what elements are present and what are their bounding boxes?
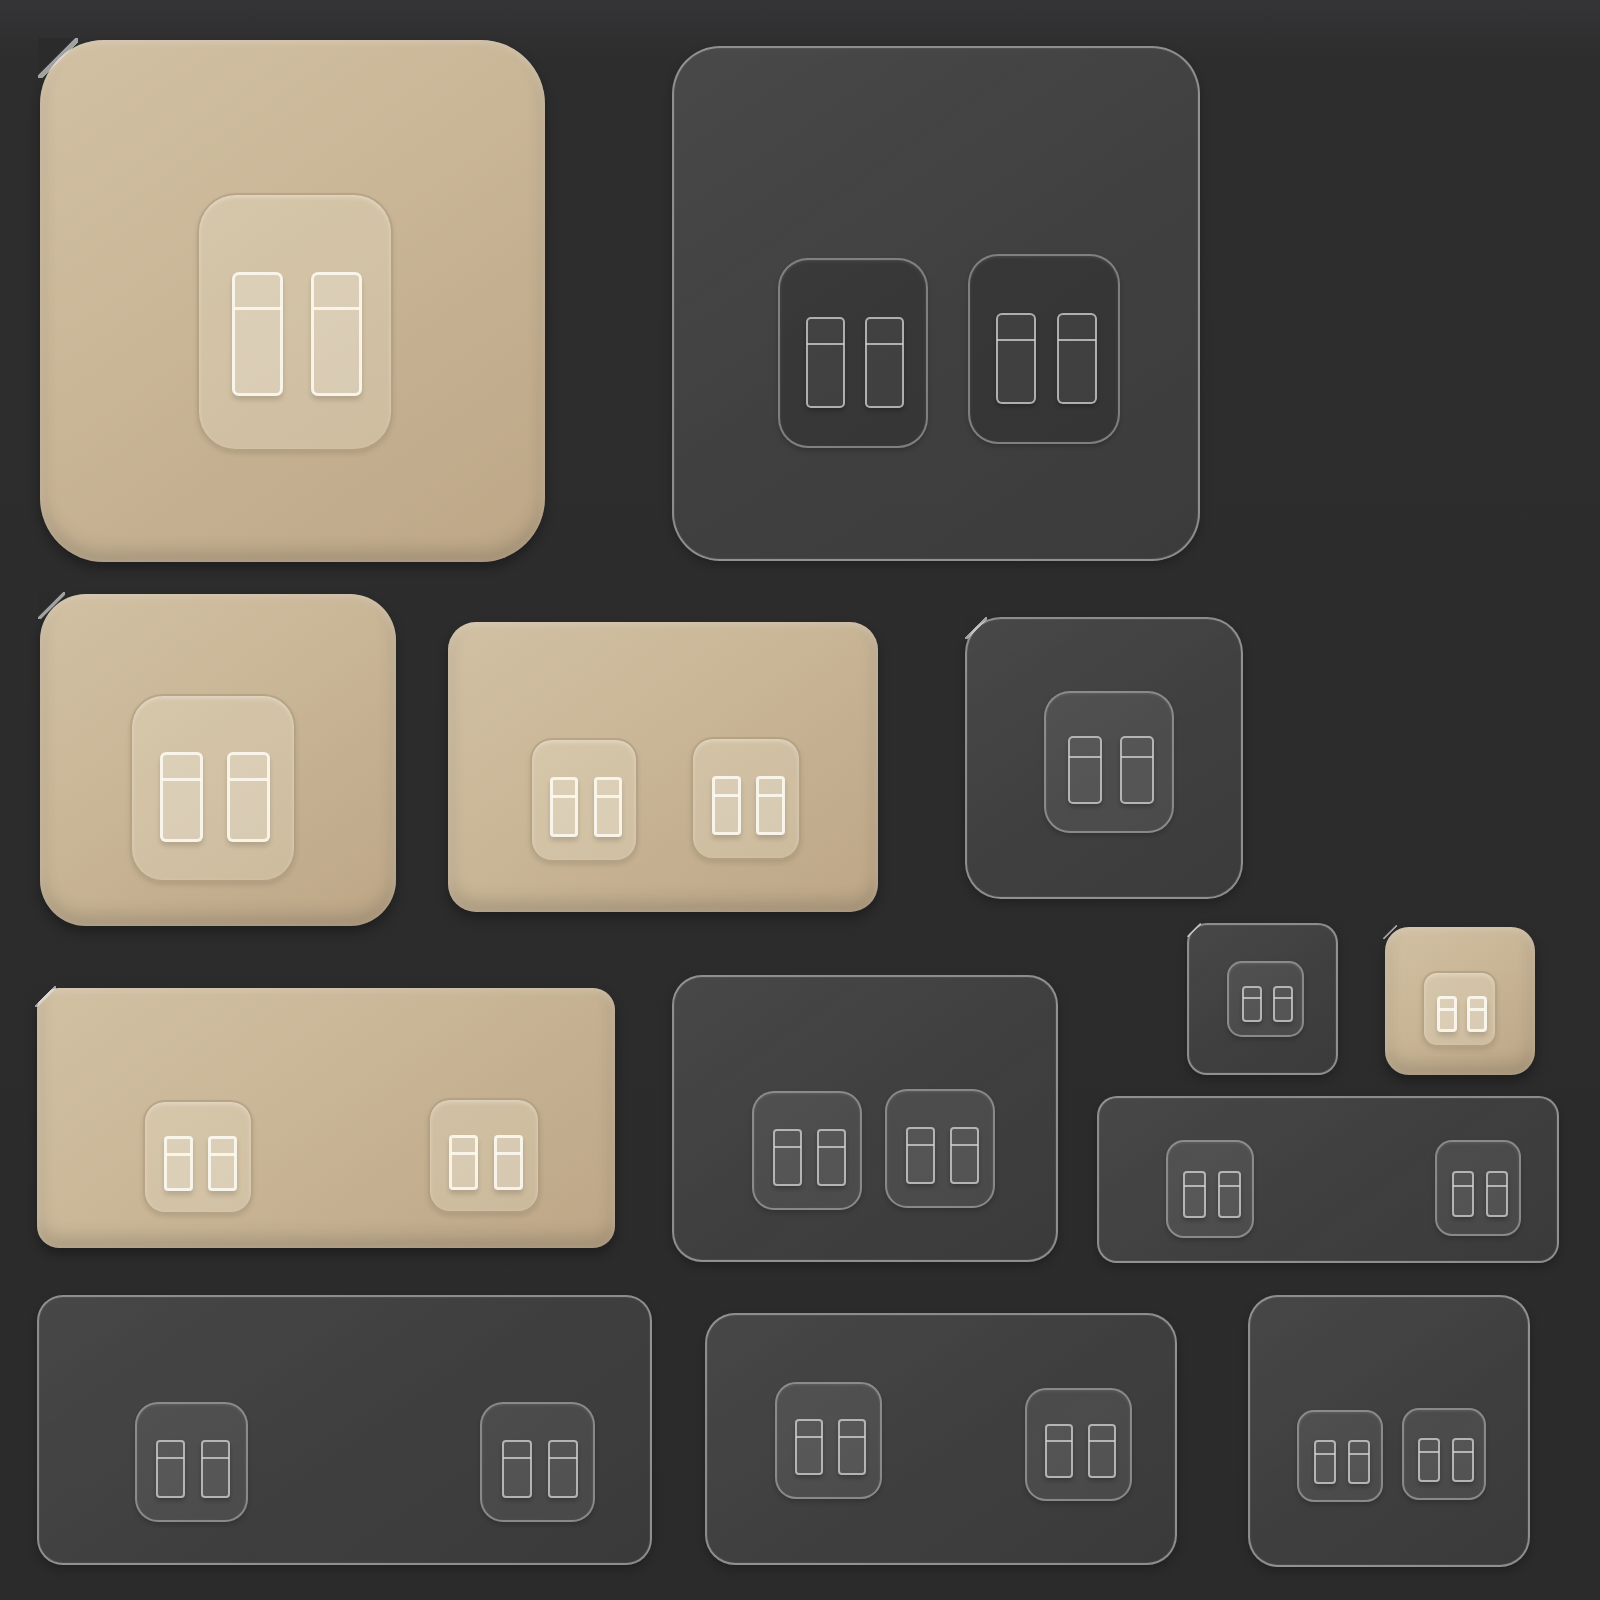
adhesive-pad-strip-clear bbox=[1097, 1096, 1559, 1263]
hook-clip bbox=[1057, 313, 1097, 404]
clip-band-line bbox=[796, 1436, 822, 1438]
hook-mount bbox=[1435, 1140, 1521, 1236]
adhesive-pad-sm-clear bbox=[1187, 923, 1338, 1075]
adhesive-pad-md-clear bbox=[965, 617, 1243, 899]
hook-clip bbox=[232, 272, 283, 396]
hook-mount bbox=[1422, 971, 1497, 1047]
clip-band-line bbox=[839, 1436, 865, 1438]
hook-mount bbox=[130, 694, 296, 882]
hook-clip bbox=[1242, 986, 1262, 1022]
hook-clip bbox=[773, 1129, 802, 1186]
hook-clip bbox=[817, 1129, 846, 1186]
clip-band-line bbox=[313, 307, 360, 310]
hook-clip bbox=[208, 1136, 237, 1191]
clip-band-line bbox=[774, 1146, 801, 1148]
clip-band-line bbox=[907, 1144, 934, 1146]
hook-mount bbox=[1025, 1388, 1132, 1501]
hook-clip bbox=[156, 1440, 185, 1498]
hook-mount bbox=[775, 1382, 882, 1499]
hook-clip bbox=[1452, 1438, 1474, 1482]
clip-band-line bbox=[166, 1153, 191, 1156]
hook-mount bbox=[1166, 1140, 1254, 1238]
clip-band-line bbox=[451, 1152, 476, 1155]
hook-clip bbox=[1452, 1171, 1474, 1217]
clip-band-line bbox=[1315, 1453, 1335, 1455]
clip-band-line bbox=[997, 339, 1035, 341]
hook-clip bbox=[1218, 1171, 1241, 1218]
lifted-corner-notch bbox=[38, 592, 65, 619]
hook-clip bbox=[1088, 1424, 1116, 1478]
lifted-corner-notch bbox=[38, 38, 78, 78]
adhesive-pad-wide-clear bbox=[37, 1295, 652, 1565]
hook-mount bbox=[197, 193, 393, 451]
clip-band-line bbox=[1089, 1440, 1115, 1442]
clip-band-line bbox=[758, 794, 783, 797]
clip-band-line bbox=[1274, 997, 1292, 999]
clip-band-line bbox=[1419, 1451, 1439, 1453]
hook-mount bbox=[1402, 1408, 1486, 1500]
clip-band-line bbox=[496, 1152, 521, 1155]
hook-clip bbox=[311, 272, 362, 396]
adhesive-pad-xl-beige bbox=[40, 40, 545, 562]
hook-clip bbox=[795, 1419, 823, 1475]
clip-band-line bbox=[1219, 1185, 1240, 1187]
hook-clip bbox=[906, 1127, 935, 1184]
clip-band-line bbox=[549, 1457, 577, 1459]
adhesive-pad-md-clear-3 bbox=[705, 1313, 1177, 1565]
clip-band-line bbox=[1243, 997, 1261, 999]
clip-band-line bbox=[503, 1457, 531, 1459]
clip-band-line bbox=[552, 795, 576, 798]
clip-band-line bbox=[1487, 1185, 1507, 1187]
hook-clip bbox=[494, 1135, 523, 1190]
hook-clip bbox=[164, 1136, 193, 1191]
hook-mount bbox=[691, 737, 801, 860]
hook-clip bbox=[550, 777, 578, 837]
clip-band-line bbox=[1058, 339, 1096, 341]
hook-mount bbox=[778, 258, 928, 448]
clip-band-line bbox=[210, 1153, 235, 1156]
hook-clip bbox=[712, 776, 741, 835]
hook-clip bbox=[950, 1127, 979, 1184]
hook-clip bbox=[1437, 996, 1457, 1032]
clip-band-line bbox=[714, 794, 739, 797]
lifted-corner-notch bbox=[35, 986, 56, 1007]
hook-clip bbox=[548, 1440, 578, 1498]
clip-band-line bbox=[202, 1457, 229, 1459]
hook-clip bbox=[838, 1419, 866, 1475]
hook-clip bbox=[1348, 1440, 1370, 1484]
hook-clip bbox=[1273, 986, 1293, 1022]
hook-clip bbox=[756, 776, 785, 835]
adhesive-pad-wide-beige-lg bbox=[37, 988, 615, 1248]
hook-clip bbox=[449, 1135, 478, 1190]
hook-clip bbox=[996, 313, 1036, 404]
clip-band-line bbox=[234, 307, 281, 310]
clip-band-line bbox=[229, 778, 268, 781]
lifted-corner-notch bbox=[1187, 923, 1201, 937]
hook-mount bbox=[480, 1402, 595, 1522]
hook-clip bbox=[594, 777, 622, 837]
lifted-corner-notch bbox=[1383, 925, 1397, 939]
hook-mount bbox=[143, 1100, 253, 1214]
hook-clip bbox=[1183, 1171, 1206, 1218]
hook-clip bbox=[865, 317, 904, 408]
hook-clip bbox=[1314, 1440, 1336, 1484]
adhesive-pad-sm-beige bbox=[1385, 927, 1535, 1075]
clip-band-line bbox=[1069, 756, 1101, 758]
clip-band-line bbox=[1439, 1008, 1455, 1011]
hook-clip bbox=[1068, 736, 1102, 804]
hook-clip bbox=[806, 317, 845, 408]
clip-band-line bbox=[1469, 1008, 1485, 1011]
clip-band-line bbox=[157, 1457, 184, 1459]
hook-clip bbox=[1120, 736, 1154, 804]
lifted-corner-notch bbox=[965, 617, 987, 639]
clip-band-line bbox=[866, 343, 903, 345]
clip-band-line bbox=[1453, 1451, 1473, 1453]
hook-clip bbox=[1418, 1438, 1440, 1482]
clip-band-line bbox=[807, 343, 844, 345]
hook-mount bbox=[752, 1091, 862, 1210]
hook-mount bbox=[135, 1402, 248, 1522]
hook-mount bbox=[1297, 1410, 1383, 1502]
hook-mount bbox=[1044, 691, 1174, 833]
clip-band-line bbox=[162, 778, 201, 781]
clip-band-line bbox=[1349, 1453, 1369, 1455]
adhesive-pad-md-clear-2 bbox=[672, 975, 1058, 1262]
hook-clip bbox=[201, 1440, 230, 1498]
clip-band-line bbox=[818, 1146, 845, 1148]
clip-band-line bbox=[1121, 756, 1153, 758]
hook-mount bbox=[530, 738, 638, 862]
hook-clip bbox=[1467, 996, 1487, 1032]
adhesive-pad-wide-beige-md bbox=[448, 622, 878, 912]
hook-clip bbox=[227, 752, 270, 842]
hook-clip bbox=[160, 752, 203, 842]
hook-clip bbox=[1486, 1171, 1508, 1217]
clip-band-line bbox=[1046, 1440, 1072, 1442]
adhesive-pad-md-clear-4 bbox=[1248, 1295, 1530, 1567]
hook-mount bbox=[1227, 961, 1304, 1037]
hook-mount bbox=[428, 1098, 540, 1213]
adhesive-pad-md-beige bbox=[40, 594, 396, 926]
hook-clip bbox=[1045, 1424, 1073, 1478]
clip-band-line bbox=[951, 1144, 978, 1146]
product-photo bbox=[0, 0, 1600, 1600]
clip-band-line bbox=[596, 795, 620, 798]
hook-clip bbox=[502, 1440, 532, 1498]
hook-mount bbox=[968, 254, 1120, 444]
adhesive-pad-xl-clear bbox=[672, 46, 1200, 561]
hook-mount bbox=[885, 1089, 995, 1208]
clip-band-line bbox=[1453, 1185, 1473, 1187]
clip-band-line bbox=[1184, 1185, 1205, 1187]
